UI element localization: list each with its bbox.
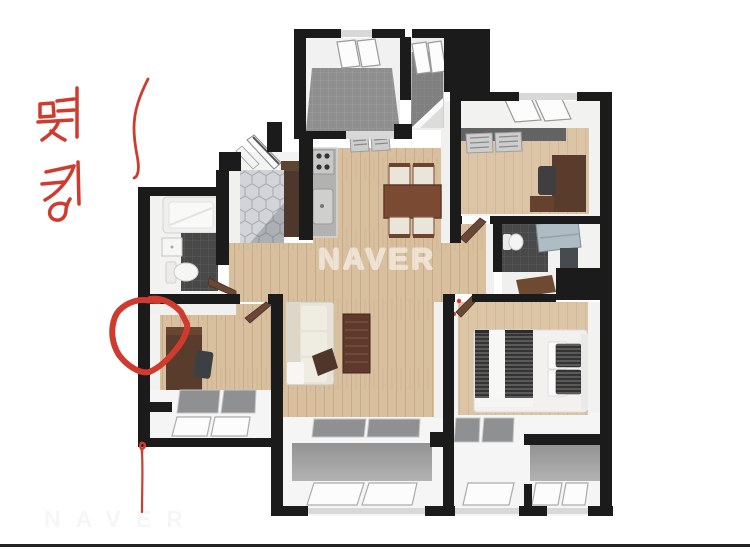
- svg-text:NAVER: NAVER: [44, 506, 198, 532]
- svg-text:NAVER: NAVER: [318, 244, 436, 277]
